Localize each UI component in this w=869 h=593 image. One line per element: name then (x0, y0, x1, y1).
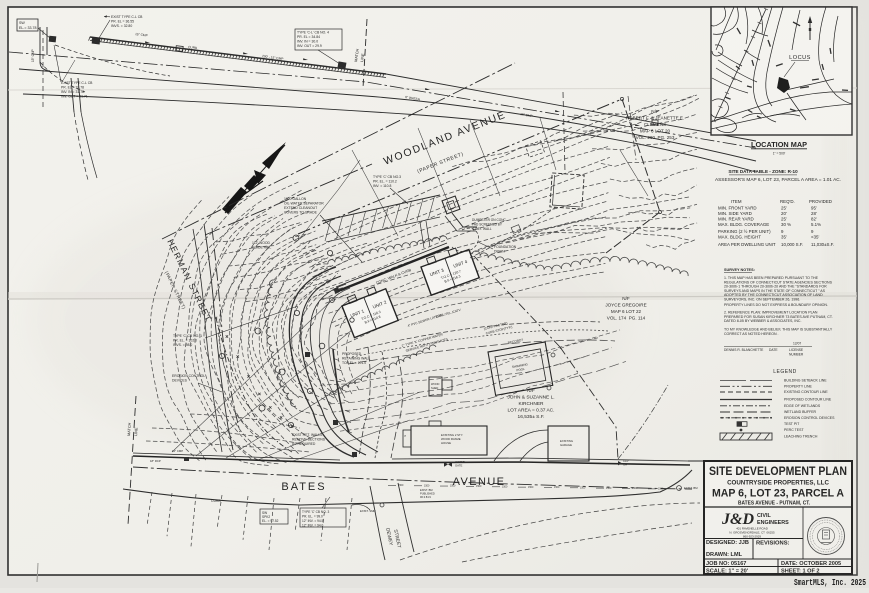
svg-text:SmartMLS, Inc. 2025: SmartMLS, Inc. 2025 (794, 578, 866, 588)
